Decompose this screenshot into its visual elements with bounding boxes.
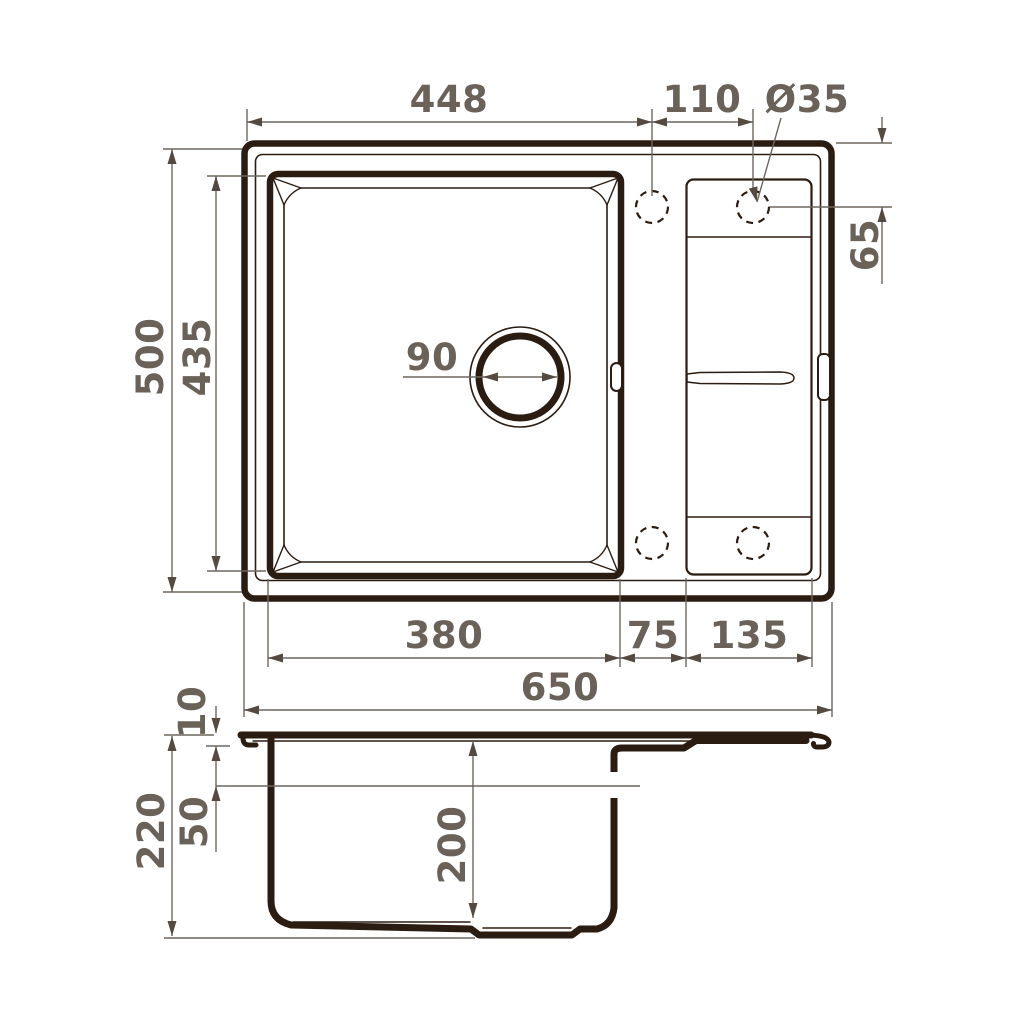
sink-top-view [245,144,832,599]
dim-overall-width: 650 [521,666,600,709]
dim-divider-width: 75 [627,614,680,657]
dim-tap-hole-diameter: Ø35 [765,78,849,121]
bowl-section-profile [271,736,806,935]
tap-hole-bottom-right [737,527,769,559]
sink-dimension-drawing: 448 110 Ø35 65 500 435 90 380 75 135 650… [0,0,1024,1024]
rim-notch [818,354,830,400]
dim-edge-to-tap: 448 [410,78,489,121]
dim-ledge-depth: 50 [173,796,216,849]
overflow-slot [611,363,622,391]
dim-total-height: 220 [130,792,173,871]
dim-bowl-inner-depth: 200 [431,806,474,885]
dim-bowl-width: 380 [405,614,484,657]
dim-tap-spacing: 110 [663,78,742,121]
sink-side-view [241,735,829,935]
drawing-svg: 448 110 Ø35 65 500 435 90 380 75 135 650… [0,0,1024,1024]
dim-rim-thickness: 10 [171,686,214,739]
wall-break-gap [604,772,625,798]
tap-hole-bottom-left [636,527,668,559]
dim-wing-width: 135 [710,614,789,657]
tap-hole-top-right [737,191,769,223]
dim-drain-diameter: 90 [406,336,459,379]
dim-bowl-depth: 435 [176,318,219,397]
drainboard-groove [687,372,794,384]
dim-overall-depth: 500 [129,318,172,397]
dim-tap-offset: 65 [844,219,887,272]
